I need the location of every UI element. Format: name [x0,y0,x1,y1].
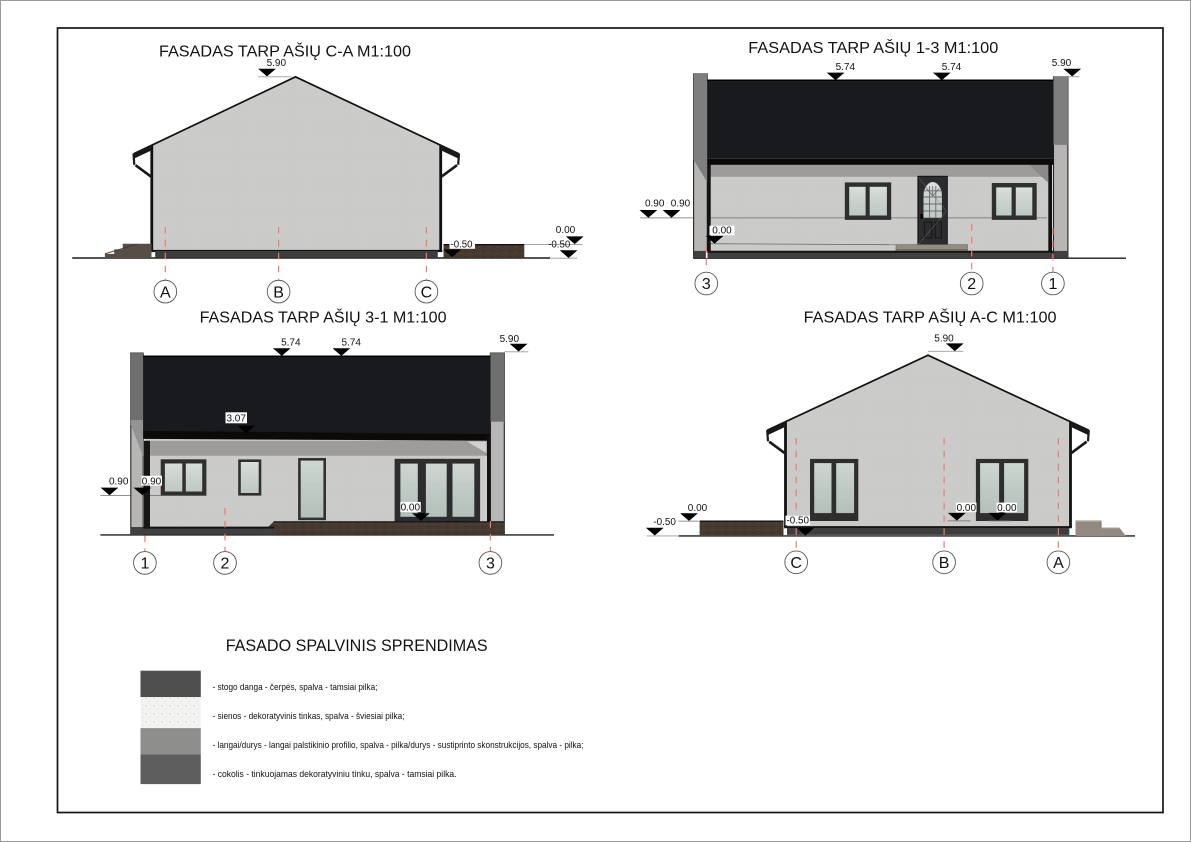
svg-text:-0.50: -0.50 [548,239,570,250]
svg-text:- sienos - dekoratyvinis tinka: - sienos - dekoratyvinis tinkas, spalva … [213,711,405,722]
svg-text:FASADAS TARP AŠIŲ 1-3 M1:100: FASADAS TARP AŠIŲ 1-3 M1:100 [748,40,998,57]
svg-text:A: A [1053,555,1064,572]
svg-text:- stogo danga - čerpės, spalva: - stogo danga - čerpės, spalva - tamsiai… [213,682,378,693]
svg-text:1: 1 [1048,276,1057,293]
svg-text:1: 1 [140,556,149,573]
svg-text:-0.50: -0.50 [653,517,676,528]
svg-text:0.90: 0.90 [671,199,691,210]
svg-text:-0.50: -0.50 [451,240,473,251]
svg-text:5.90: 5.90 [500,334,520,345]
svg-text:FASADAS TARP AŠIŲ 3-1 M1:100: FASADAS TARP AŠIŲ 3-1 M1:100 [200,310,447,327]
svg-text:0.90: 0.90 [645,199,665,210]
svg-text:5.74: 5.74 [942,62,962,73]
svg-text:2: 2 [221,556,230,573]
svg-text:5.90: 5.90 [934,334,954,345]
svg-text:A: A [160,284,171,301]
svg-text:5.74: 5.74 [341,338,361,349]
svg-text:5.90: 5.90 [1052,58,1072,69]
svg-text:C: C [421,284,433,301]
svg-text:0.90: 0.90 [142,476,162,487]
svg-text:0.00: 0.00 [997,503,1017,514]
svg-text:0.00: 0.00 [401,503,421,514]
svg-text:B: B [939,555,950,572]
svg-text:0.00: 0.00 [712,226,732,237]
svg-text:2: 2 [967,276,976,293]
svg-text:- langai/durys - langai palsti: - langai/durys - langai palstikinio prof… [213,740,584,751]
svg-text:0.00: 0.00 [957,503,977,514]
svg-text:3: 3 [486,556,495,573]
svg-text:FASADAS TARP AŠIŲ A-C M1:100: FASADAS TARP AŠIŲ A-C M1:100 [804,310,1057,327]
svg-text:3: 3 [702,276,711,293]
svg-text:FASADO SPALVINIS SPRENDIMAS: FASADO SPALVINIS SPRENDIMAS [226,637,488,655]
svg-text:5.74: 5.74 [281,338,301,349]
svg-text:0.90: 0.90 [109,476,129,487]
svg-text:3.07: 3.07 [226,414,246,425]
svg-text:5.74: 5.74 [836,62,856,73]
svg-text:0.00: 0.00 [688,503,708,514]
svg-text:0.00: 0.00 [556,225,576,236]
svg-text:C: C [790,555,802,572]
svg-text:- cokolis - tinkuojamas dekora: - cokolis - tinkuojamas dekoratyviniu ti… [213,769,457,780]
svg-text:5.90: 5.90 [267,58,287,69]
svg-text:-0.50: -0.50 [787,516,810,527]
svg-text:B: B [273,284,284,301]
